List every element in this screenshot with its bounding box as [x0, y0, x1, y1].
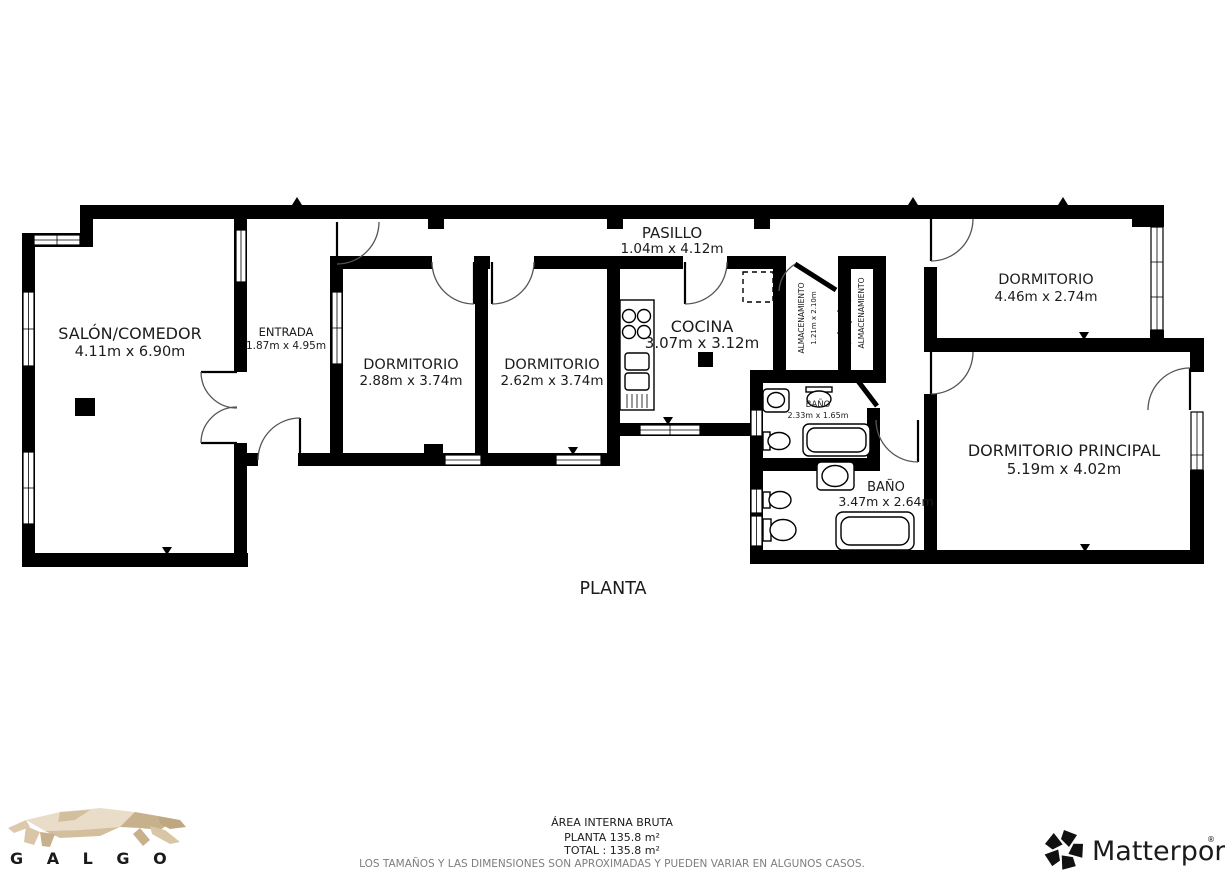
room-label-pasillo: PASILLO [642, 224, 702, 242]
room-label-salon: SALÓN/COMEDOR [58, 324, 201, 343]
room-label-dormitorio1: DORMITORIO [363, 357, 458, 373]
room-dims-salon: 4.11m x 6.90m [75, 344, 186, 360]
footer-planta-area: PLANTA 135.8 m² [564, 831, 660, 844]
room-dims-bano-small: 2.33m x 1.65m [787, 411, 848, 420]
room-dims-bano-large: 3.47m x 2.64m [838, 494, 933, 509]
room-label-entrada: ENTRADA [259, 325, 314, 339]
room-dims-dormitorio2: 2.62m x 3.74m [501, 373, 604, 389]
window [751, 489, 762, 513]
door-bano-pequeno [858, 381, 877, 406]
door-principal [931, 352, 973, 394]
registered-mark: ® [1207, 835, 1215, 844]
window [556, 455, 601, 465]
room-label-bano-large: BAÑO [867, 479, 905, 495]
ceiling-hatch [743, 272, 773, 302]
window [332, 292, 342, 364]
door-dormitorio1 [432, 262, 474, 304]
sink-icon [763, 389, 789, 412]
walls [22, 205, 1204, 567]
window [1151, 227, 1163, 330]
double-door-salon [201, 372, 237, 443]
matterport-logo: Matterport ® [1042, 830, 1225, 874]
window [34, 235, 80, 245]
bathtub-icon [836, 512, 914, 550]
room-dims-principal: 5.19m x 4.02m [1007, 460, 1121, 478]
door-dormitorio2 [492, 262, 534, 304]
door-cocina [685, 262, 727, 304]
room-label-dormitorio2: DORMITORIO [504, 357, 599, 373]
window [751, 516, 762, 546]
footer-disclaimer: LOS TAMAÑOS Y LAS DIMENSIONES SON APROXI… [359, 857, 865, 870]
toilet-icon [763, 519, 796, 541]
toilet-icon [763, 492, 791, 509]
column-cocina [698, 352, 713, 367]
room-dims-almacenamiento1: 1.21m x 2.10m [810, 291, 818, 345]
footer-area-title: ÁREA INTERNA BRUTA [551, 816, 673, 829]
footer-total-area: TOTAL : 135.8 m² [563, 844, 660, 857]
floorplan-page: SALÓN/COMEDOR 4.11m x 6.90m ENTRADA 1.87… [0, 0, 1225, 880]
floorplan-canvas: SALÓN/COMEDOR 4.11m x 6.90m ENTRADA 1.87… [0, 0, 1225, 880]
room-label-almacenamiento1: ALMACENAMIENTO [797, 282, 806, 353]
matterport-wordmark: Matterport [1092, 836, 1225, 867]
room-label-almacenamiento2: ALMACENAMIENTO [857, 277, 866, 348]
room-dims-entrada: 1.87m x 4.95m [246, 340, 326, 352]
door-dormitorio3 [931, 219, 973, 261]
window [23, 452, 34, 524]
matterport-icon [1042, 830, 1087, 874]
room-dims-pasillo: 1.04m x 4.12m [621, 241, 724, 257]
window [23, 292, 34, 366]
toilet-icon [763, 432, 790, 450]
sink-icon [817, 462, 854, 490]
galgo-logo: G A L G O [8, 808, 186, 868]
footer: ÁREA INTERNA BRUTA PLANTA 135.8 m² TOTAL… [359, 816, 865, 870]
door-balcon-principal [1148, 368, 1190, 410]
plan-title: PLANTA [579, 579, 646, 599]
room-dims-dormitorio3: 4.46m x 2.74m [995, 289, 1098, 305]
column-salon [75, 398, 95, 416]
room-dims-dormitorio1: 2.88m x 3.74m [360, 373, 463, 389]
window [751, 410, 762, 436]
galgo-wordmark: G A L G O [10, 849, 176, 868]
bathroom-small-fixtures [763, 387, 870, 456]
room-label-dormitorio3: DORMITORIO [998, 272, 1093, 288]
window [236, 230, 246, 282]
room-label-principal: DORMITORIO PRINCIPAL [968, 441, 1160, 460]
room-label-bano-small: BAÑO [806, 399, 831, 410]
door-bano-grande [876, 420, 918, 462]
bathtub-icon [803, 424, 870, 456]
room-dims-cocina: 3.07m x 3.12m [645, 334, 759, 352]
door-entrada-sur [258, 418, 300, 460]
window [1191, 412, 1203, 470]
galgo-dog-icon [8, 808, 186, 847]
window [445, 455, 481, 465]
door-almacenamiento [779, 264, 836, 291]
window [640, 425, 700, 435]
